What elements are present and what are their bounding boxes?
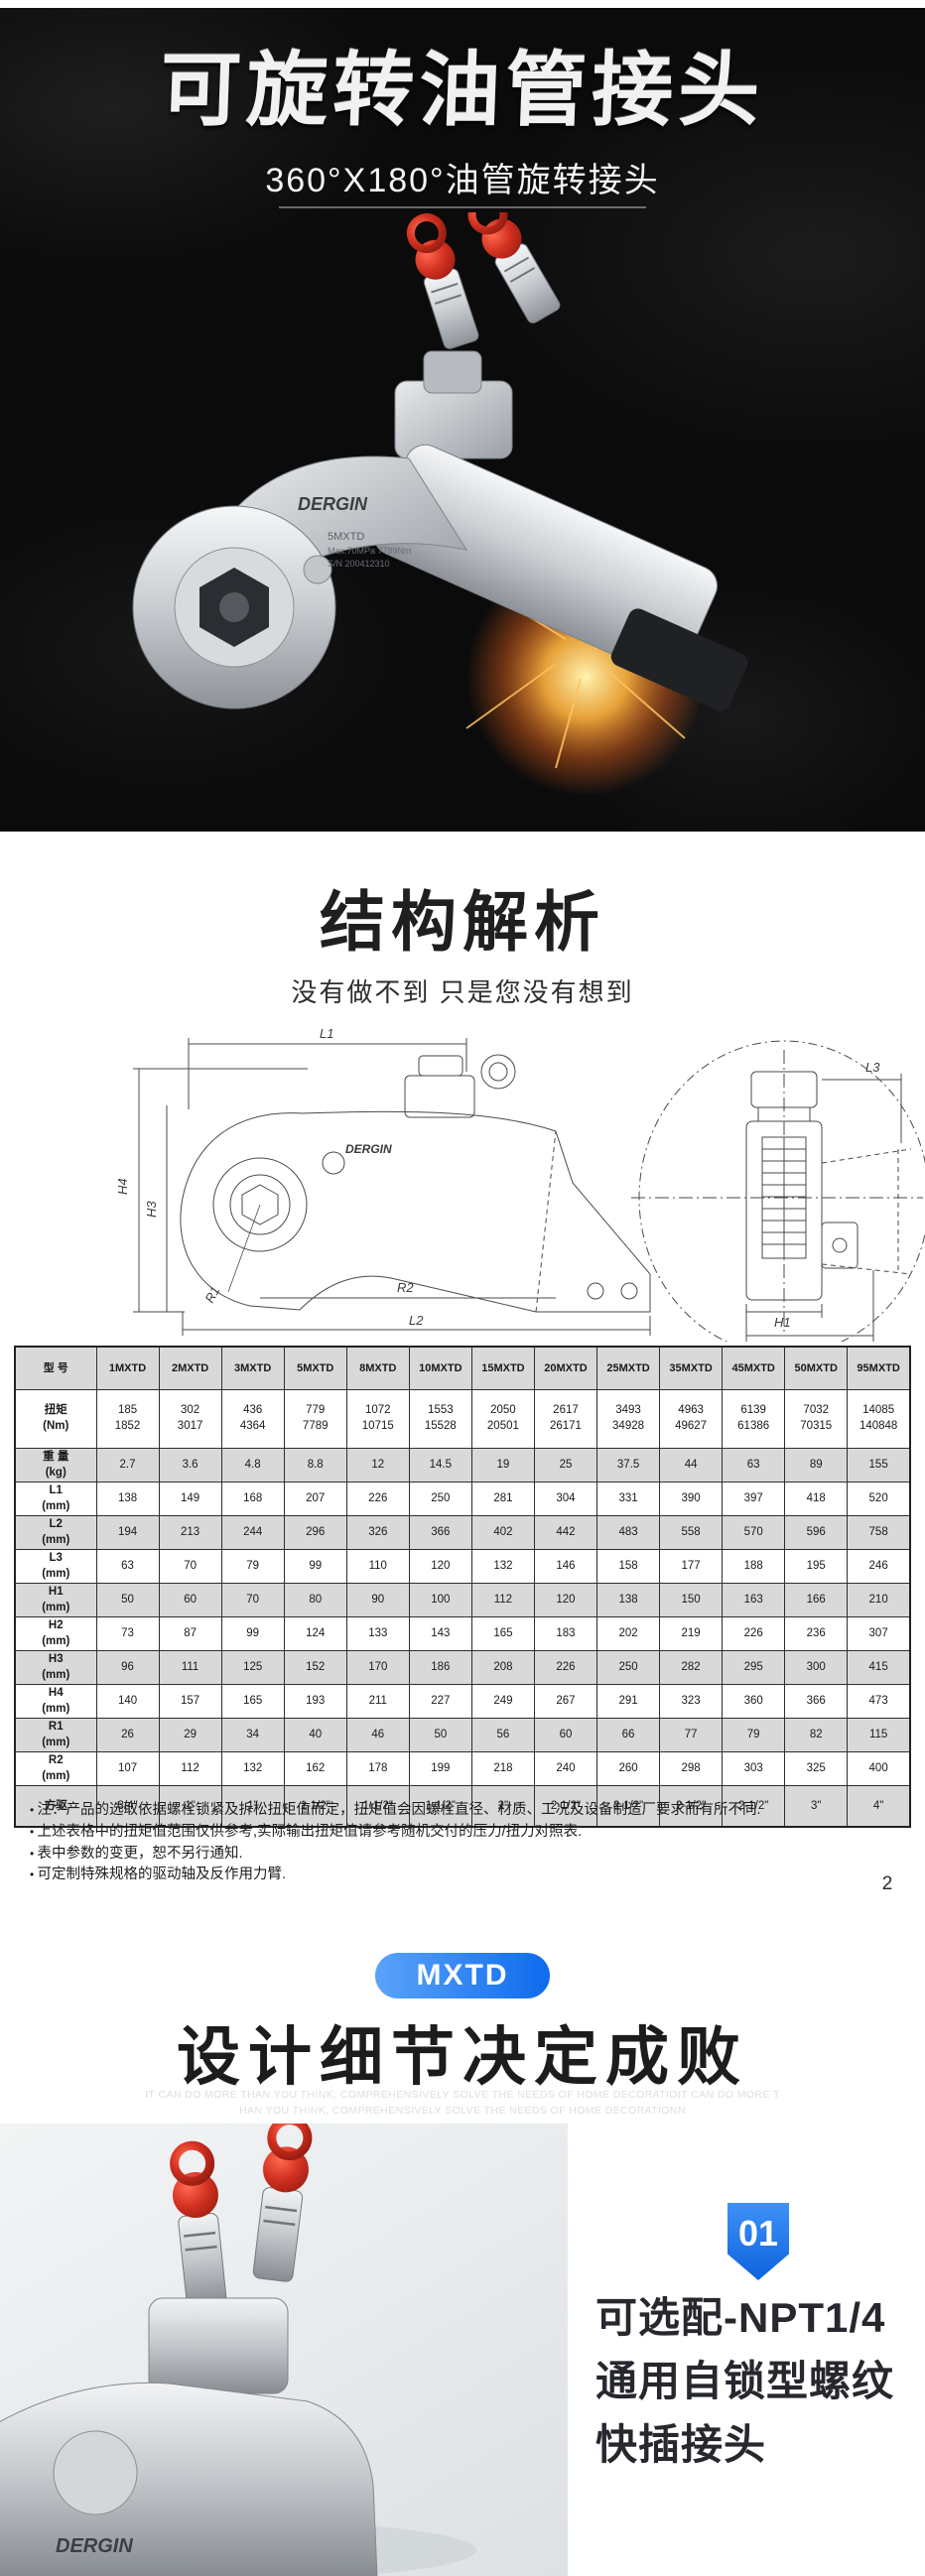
note-item: 表中参数的变更，恕不另行通知.	[30, 1844, 893, 1866]
spec-header-cell: 2MXTD	[159, 1347, 221, 1390]
spec-cell: 758	[848, 1516, 910, 1550]
spec-cell: 100	[409, 1584, 471, 1617]
spec-cell: 26	[96, 1719, 159, 1752]
spec-cell: 473	[848, 1685, 910, 1719]
spec-cell: 149	[159, 1482, 221, 1516]
spec-row: L1 (mm)138149168207226250281304331390397…	[15, 1482, 910, 1516]
spec-cell: 249	[471, 1685, 534, 1719]
spec-header-cell: 3MXTD	[221, 1347, 284, 1390]
spec-cell: 8.8	[284, 1449, 346, 1482]
spec-cell: 140	[96, 1685, 159, 1719]
spec-cell: 133	[346, 1617, 409, 1651]
spec-cell: 178	[346, 1752, 409, 1786]
spec-cell: 418	[785, 1482, 848, 1516]
feature-section: DERGIN 01 可选配-NPT1/4 通用自锁型螺纹快插接头	[0, 2124, 925, 2576]
spec-cell: 397	[723, 1482, 785, 1516]
spec-header-cell: 45MXTD	[723, 1347, 785, 1390]
spec-cell: 163	[723, 1584, 785, 1617]
hero-section: 可旋转油管接头 360°X180°油管旋转接头	[0, 8, 925, 832]
spec-cell: 520	[848, 1482, 910, 1516]
spec-cell: 436 4364	[221, 1390, 284, 1449]
spec-cell: 219	[660, 1617, 723, 1651]
note-item: 注：产品的选取依据螺栓锁紧及拆松扭矩值而定，扭矩值会因螺栓直径、材质、工况及设备…	[30, 1800, 893, 1822]
feature-product-image: DERGIN	[0, 2124, 568, 2576]
spec-cell: 125	[221, 1651, 284, 1685]
feature-number-badge: 01	[727, 2203, 789, 2280]
spec-cell: 3.6	[159, 1449, 221, 1482]
spec-cell: 323	[660, 1685, 723, 1719]
feature-description: 可选配-NPT1/4 通用自锁型螺纹快插接头	[595, 2286, 925, 2476]
spec-cell: 2050 20501	[471, 1390, 534, 1449]
structure-title: 结构解析	[0, 869, 925, 965]
note-item: 上述表格中的扭矩值范围仅供参考,实际输出扭矩值请参考随机交付的压力/扭力对照表.	[30, 1822, 893, 1844]
spec-cell: 4.8	[221, 1449, 284, 1482]
spec-cell: 157	[159, 1685, 221, 1719]
spec-cell: 267	[534, 1685, 596, 1719]
spec-row: R1 (mm)262934404650566066777982115	[15, 1719, 910, 1752]
spec-cell: 14.5	[409, 1449, 471, 1482]
hero-divider	[279, 206, 646, 208]
watermark-text: IT CAN DO MORE THAN YOU THINK, COMPREHEN…	[0, 2088, 925, 2120]
spec-cell: 226	[346, 1482, 409, 1516]
spec-cell: 99	[284, 1550, 346, 1584]
spec-cell: 3493 34928	[597, 1390, 660, 1449]
spec-cell: 291	[597, 1685, 660, 1719]
spec-cell: 596	[785, 1516, 848, 1550]
spec-text: Max.70MPa 7789Nm	[328, 546, 412, 556]
spec-cell: 4963 49627	[660, 1390, 723, 1449]
spec-row-label: H2 (mm)	[15, 1617, 96, 1651]
spec-cell: 390	[660, 1482, 723, 1516]
spec-cell: 14085 140848	[848, 1390, 910, 1449]
spec-cell: 325	[785, 1752, 848, 1786]
spec-cell: 199	[409, 1752, 471, 1786]
spec-cell: 295	[723, 1651, 785, 1685]
spec-cell: 70	[159, 1550, 221, 1584]
spec-cell: 302 3017	[159, 1390, 221, 1449]
spec-row: H4 (mm)140157165193211227249267291323360…	[15, 1685, 910, 1719]
spec-cell: 193	[284, 1685, 346, 1719]
series-badge: MXTD	[375, 1953, 550, 1998]
spec-cell: 37.5	[597, 1449, 660, 1482]
spec-cell: 195	[785, 1550, 848, 1584]
spec-cell: 186	[409, 1651, 471, 1685]
spec-cell: 152	[284, 1651, 346, 1685]
spec-row: 重 量 (kg)2.73.64.88.81214.5192537.5446389…	[15, 1449, 910, 1482]
spec-cell: 80	[284, 1584, 346, 1617]
spec-cell: 110	[346, 1550, 409, 1584]
spec-table: 型 号1MXTD2MXTD3MXTD5MXTD8MXTD10MXTD15MXTD…	[14, 1346, 911, 1828]
spec-cell: 1072 10715	[346, 1390, 409, 1449]
spec-cell: 218	[471, 1752, 534, 1786]
spec-row: H2 (mm)738799124133143165183202219226236…	[15, 1617, 910, 1651]
spec-header-cell: 25MXTD	[597, 1347, 660, 1390]
product-detail-page: 可旋转油管接头 360°X180°油管旋转接头	[0, 0, 925, 2576]
spec-header-cell: 50MXTD	[785, 1347, 848, 1390]
spec-cell: 227	[409, 1685, 471, 1719]
brand-text: DERGIN	[298, 494, 368, 514]
spec-cell: 402	[471, 1516, 534, 1550]
spec-header-cell: 15MXTD	[471, 1347, 534, 1390]
spec-cell: 112	[159, 1752, 221, 1786]
spec-cell: 63	[723, 1449, 785, 1482]
dim-label-h3: H3	[144, 1201, 159, 1218]
spec-cell: 483	[597, 1516, 660, 1550]
spec-row-label: 重 量 (kg)	[15, 1449, 96, 1482]
spec-cell: 240	[534, 1752, 596, 1786]
spec-cell: 168	[221, 1482, 284, 1516]
spec-cell: 400	[848, 1752, 910, 1786]
spec-cell: 77	[660, 1719, 723, 1752]
coupler-left	[168, 2143, 230, 2308]
spec-cell: 366	[785, 1685, 848, 1719]
spec-cell: 183	[534, 1617, 596, 1651]
spec-cell: 19	[471, 1449, 534, 1482]
serial-text: S/N 200412310	[328, 559, 390, 569]
spec-row-label: R1 (mm)	[15, 1719, 96, 1752]
spec-cell: 79	[723, 1719, 785, 1752]
spec-cell: 132	[221, 1752, 284, 1786]
spec-cell: 56	[471, 1719, 534, 1752]
spec-cell: 146	[534, 1550, 596, 1584]
spec-cell: 307	[848, 1617, 910, 1651]
spec-cell: 2.7	[96, 1449, 159, 1482]
spec-cell: 25	[534, 1449, 596, 1482]
spec-table-container: 型 号1MXTD2MXTD3MXTD5MXTD8MXTD10MXTD15MXTD…	[14, 1346, 911, 1828]
spec-cell: 250	[597, 1651, 660, 1685]
spec-cell: 185 1852	[96, 1390, 159, 1449]
spec-cell: 236	[785, 1617, 848, 1651]
spec-cell: 166	[785, 1584, 848, 1617]
spec-cell: 107	[96, 1752, 159, 1786]
model-text: 5MXTD	[328, 531, 364, 543]
feature-brand-text: DERGIN	[56, 2535, 133, 2557]
spec-cell: 79	[221, 1550, 284, 1584]
spec-cell: 115	[848, 1719, 910, 1752]
structure-subtitle: 没有做不到 只是您没有想到	[0, 972, 925, 1009]
spec-header-cell: 10MXTD	[409, 1347, 471, 1390]
spec-cell: 132	[471, 1550, 534, 1584]
dim-label-l3: L3	[865, 1060, 880, 1075]
spec-cell: 211	[346, 1685, 409, 1719]
drawing-brand-text: DERGIN	[345, 1142, 392, 1156]
spec-cell: 360	[723, 1685, 785, 1719]
spec-cell: 415	[848, 1651, 910, 1685]
spec-cell: 138	[597, 1584, 660, 1617]
spec-cell: 1553 15528	[409, 1390, 471, 1449]
spec-cell: 34	[221, 1719, 284, 1752]
spec-row: 扭矩 (Nm)185 1852302 3017436 4364779 77891…	[15, 1390, 910, 1449]
spec-row-label: H1 (mm)	[15, 1584, 96, 1617]
spec-cell: 70	[221, 1584, 284, 1617]
spec-row-label: H4 (mm)	[15, 1685, 96, 1719]
spec-cell: 303	[723, 1752, 785, 1786]
spec-cell: 177	[660, 1550, 723, 1584]
spec-cell: 779 7789	[284, 1390, 346, 1449]
spec-cell: 331	[597, 1482, 660, 1516]
spec-cell: 7032 70315	[785, 1390, 848, 1449]
spec-cell: 40	[284, 1719, 346, 1752]
spec-row-label: 扭矩 (Nm)	[15, 1390, 96, 1449]
spec-cell: 188	[723, 1550, 785, 1584]
spec-cell: 207	[284, 1482, 346, 1516]
spec-cell: 194	[96, 1516, 159, 1550]
spec-cell: 246	[848, 1550, 910, 1584]
spec-cell: 46	[346, 1719, 409, 1752]
spec-cell: 326	[346, 1516, 409, 1550]
hero-title: 可旋转油管接头	[0, 24, 925, 142]
spec-cell: 6139 61386	[723, 1390, 785, 1449]
spec-cell: 90	[346, 1584, 409, 1617]
feature-photo: DERGIN	[0, 2124, 568, 2576]
technical-drawings: L1 H4 H3 R1 R2 L2 L3 H1 H2 DERGIN	[0, 1014, 925, 1342]
spec-cell: 300	[785, 1651, 848, 1685]
spec-cell: 2617 26171	[534, 1390, 596, 1449]
spec-cell: 281	[471, 1482, 534, 1516]
spec-cell: 162	[284, 1752, 346, 1786]
spec-cell: 50	[409, 1719, 471, 1752]
spec-cell: 155	[848, 1449, 910, 1482]
spec-cell: 226	[534, 1651, 596, 1685]
drawing-end-view	[631, 1041, 925, 1342]
spec-cell: 296	[284, 1516, 346, 1550]
spec-header-cell: 95MXTD	[848, 1347, 910, 1390]
spec-header-cell: 35MXTD	[660, 1347, 723, 1390]
spec-cell: 111	[159, 1651, 221, 1685]
spec-cell: 138	[96, 1482, 159, 1516]
spec-cell: 208	[471, 1651, 534, 1685]
spec-cell: 442	[534, 1516, 596, 1550]
spec-cell: 366	[409, 1516, 471, 1550]
spec-cell: 143	[409, 1617, 471, 1651]
spec-cell: 112	[471, 1584, 534, 1617]
hero-subtitle: 360°X180°油管旋转接头	[0, 153, 925, 201]
dim-label-r1: R1	[201, 1284, 222, 1306]
watermark-line2: HAN YOU THINK, COMPREHENSIVELY SOLVE THE…	[0, 2104, 925, 2120]
dim-label-h1: H1	[774, 1315, 791, 1330]
dim-label-h2: H2	[800, 1340, 817, 1342]
spec-row: H1 (mm)506070809010011212013815016316621…	[15, 1584, 910, 1617]
spec-cell: 120	[534, 1584, 596, 1617]
design-title: 设计细节决定成败	[0, 2006, 925, 2098]
spec-header-cell: 20MXTD	[534, 1347, 596, 1390]
spec-cell: 96	[96, 1651, 159, 1685]
spec-row-label: L2 (mm)	[15, 1516, 96, 1550]
spec-row-label: L3 (mm)	[15, 1550, 96, 1584]
spec-cell: 60	[159, 1584, 221, 1617]
note-item: 可定制特殊规格的驱动轴及反作用力臂.	[30, 1865, 893, 1886]
spec-header-cell: 型 号	[15, 1347, 96, 1390]
spec-cell: 282	[660, 1651, 723, 1685]
spec-cell: 73	[96, 1617, 159, 1651]
top-white-strip	[0, 0, 925, 8]
spec-row-label: H3 (mm)	[15, 1651, 96, 1685]
spec-cell: 60	[534, 1719, 596, 1752]
spec-cell: 50	[96, 1584, 159, 1617]
spec-cell: 82	[785, 1719, 848, 1752]
spec-cell: 570	[723, 1516, 785, 1550]
spec-cell: 260	[597, 1752, 660, 1786]
spec-cell: 158	[597, 1550, 660, 1584]
spec-cell: 150	[660, 1584, 723, 1617]
spec-cell: 298	[660, 1752, 723, 1786]
spec-cell: 63	[96, 1550, 159, 1584]
spec-cell: 210	[848, 1584, 910, 1617]
spec-cell: 250	[409, 1482, 471, 1516]
swivel-coupler-assembly	[395, 212, 564, 458]
spec-header-cell: 8MXTD	[346, 1347, 409, 1390]
spec-cell: 66	[597, 1719, 660, 1752]
spec-cell: 99	[221, 1617, 284, 1651]
spec-row: R2 (mm)107112132162178199218240260298303…	[15, 1752, 910, 1786]
spec-cell: 165	[221, 1685, 284, 1719]
spec-cell: 124	[284, 1617, 346, 1651]
spec-row: H3 (mm)961111251521701862082262502822953…	[15, 1651, 910, 1685]
spec-cell: 87	[159, 1617, 221, 1651]
dim-label-l1: L1	[320, 1026, 333, 1041]
dim-label-l2: L2	[409, 1313, 424, 1328]
spec-header-cell: 5MXTD	[284, 1347, 346, 1390]
dim-label-r2: R2	[397, 1280, 414, 1295]
notes-list: 注：产品的选取依据螺栓锁紧及拆松扭矩值而定，扭矩值会因螺栓直径、材质、工况及设备…	[30, 1800, 893, 1886]
spec-cell: 165	[471, 1617, 534, 1651]
spec-row: L2 (mm)194213244296326366402442483558570…	[15, 1516, 910, 1550]
dim-label-h4: H4	[115, 1178, 130, 1195]
spec-row-label: L1 (mm)	[15, 1482, 96, 1516]
spec-cell: 202	[597, 1617, 660, 1651]
spec-row-label: R2 (mm)	[15, 1752, 96, 1786]
spec-cell: 120	[409, 1550, 471, 1584]
wrench-head	[133, 506, 335, 708]
hero-product-image: DERGIN 5MXTD Max.70MPa 7789Nm S/N 200412…	[0, 212, 925, 824]
spec-cell: 29	[159, 1719, 221, 1752]
spec-cell: 170	[346, 1651, 409, 1685]
spec-cell: 244	[221, 1516, 284, 1550]
spec-cell: 226	[723, 1617, 785, 1651]
spec-cell: 304	[534, 1482, 596, 1516]
spec-cell: 44	[660, 1449, 723, 1482]
spec-row: L3 (mm)637079991101201321461581771881952…	[15, 1550, 910, 1584]
spec-cell: 89	[785, 1449, 848, 1482]
spec-cell: 12	[346, 1449, 409, 1482]
spec-cell: 213	[159, 1516, 221, 1550]
watermark-line1: IT CAN DO MORE THAN YOU THINK, COMPREHEN…	[0, 2088, 925, 2104]
coupler-right	[249, 2124, 314, 2282]
spec-cell: 558	[660, 1516, 723, 1550]
page-number: 2	[863, 1873, 911, 1895]
spec-header-cell: 1MXTD	[96, 1347, 159, 1390]
